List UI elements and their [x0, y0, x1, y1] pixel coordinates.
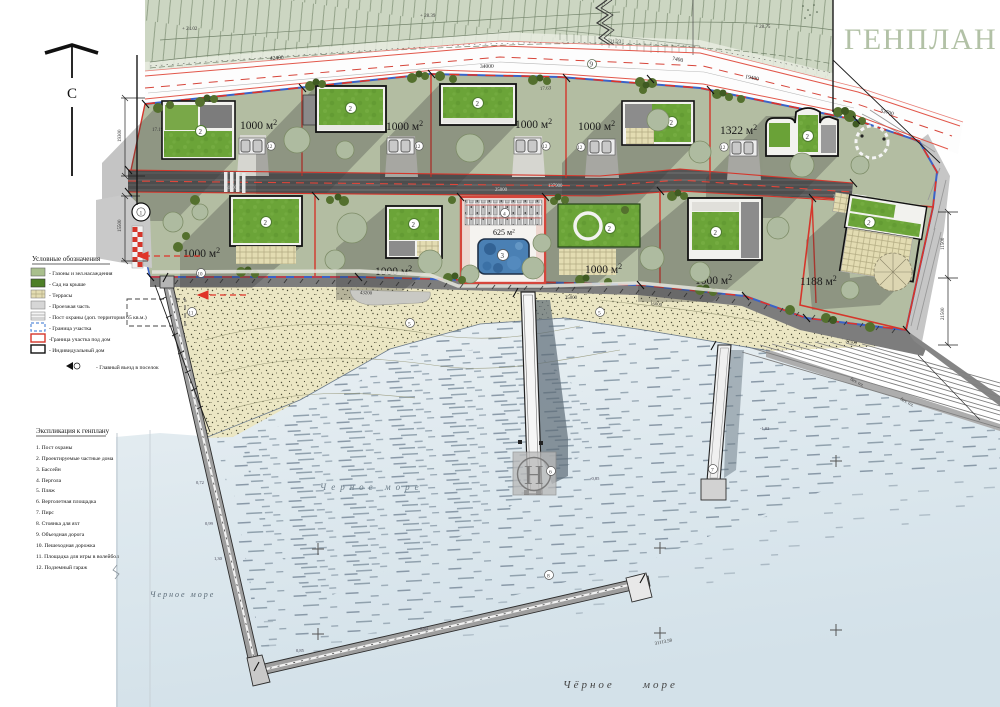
svg-text:34000: 34000 — [480, 64, 494, 70]
svg-text:1: 1 — [140, 211, 143, 217]
svg-text:5. Пляж: 5. Пляж — [36, 488, 55, 494]
svg-text:12: 12 — [542, 145, 548, 150]
svg-text:10. Пешеходная дорожка: 10. Пешеходная дорожка — [36, 543, 96, 549]
svg-text:- Граница участка: - Граница участка — [49, 326, 92, 332]
svg-text:6. Вертолетная площадка: 6. Вертолетная площадка — [36, 499, 97, 505]
svg-text:12: 12 — [720, 146, 726, 151]
svg-text:15500: 15500 — [118, 219, 123, 232]
svg-text:5: 5 — [408, 322, 411, 328]
svg-text:С: С — [67, 86, 77, 102]
svg-text:12. Подземный гараж: 12. Подземный гараж — [36, 564, 87, 571]
svg-text:+ 28.75: + 28.75 — [755, 25, 771, 30]
svg-text:3: 3 — [501, 252, 505, 260]
svg-text:12: 12 — [267, 145, 273, 150]
svg-text:2: 2 — [199, 128, 203, 136]
svg-text:- Газоны и зел.насаждения: - Газоны и зел.насаждения — [49, 271, 113, 277]
svg-text:+ 24.02: + 24.02 — [182, 27, 198, 32]
svg-text:- Индивидуальный дом: - Индивидуальный дом — [49, 347, 105, 354]
svg-text:1322 м2: 1322 м2 — [720, 123, 757, 137]
svg-text:12: 12 — [415, 145, 421, 150]
svg-text:8. Стоянка для яхт: 8. Стоянка для яхт — [36, 521, 80, 527]
svg-text:Экспликация к генплану: Экспликация к генплану — [36, 427, 110, 435]
svg-text:Чёрное: Чёрное — [563, 679, 615, 691]
svg-text:- Террасы: - Террасы — [49, 293, 73, 299]
svg-text:25000: 25000 — [495, 188, 508, 193]
svg-text:19300: 19300 — [118, 129, 123, 142]
svg-text:3. Бассейн: 3. Бассейн — [36, 466, 61, 473]
svg-text:- Главный въезд в поселок: - Главный въезд в поселок — [96, 364, 159, 371]
svg-text:2: 2 — [264, 219, 268, 227]
svg-text:- Сад на крыше: - Сад на крыше — [49, 282, 86, 288]
svg-text:9. Объездная дорога: 9. Объездная дорога — [36, 531, 85, 538]
svg-text:17.63: 17.63 — [540, 86, 552, 92]
svg-text:12: 12 — [577, 146, 583, 151]
svg-text:2: 2 — [608, 225, 612, 233]
svg-text:10: 10 — [198, 273, 204, 278]
svg-text:11500: 11500 — [941, 237, 946, 250]
svg-text:1000 м2: 1000 м2 — [515, 117, 552, 131]
svg-text:1000 м2: 1000 м2 — [578, 119, 615, 133]
svg-text:- Проезжая часть: - Проезжая часть — [49, 304, 90, 310]
svg-text:- Пост охраны (доп. территория: - Пост охраны (доп. территория 65 кв.м.) — [49, 314, 147, 321]
svg-text:2: 2 — [670, 119, 674, 127]
svg-text:11: 11 — [189, 312, 194, 317]
svg-text:43200: 43200 — [360, 291, 373, 296]
svg-text:Черное море: Черное море — [320, 482, 424, 492]
svg-text:1000 м2: 1000 м2 — [585, 262, 622, 276]
svg-text:+ 28.39: + 28.39 — [420, 14, 436, 19]
svg-text:Условные обозначения: Условные обозначения — [32, 255, 101, 263]
svg-text:4: 4 — [503, 212, 506, 218]
svg-text:6: 6 — [549, 470, 552, 476]
svg-text:8: 8 — [547, 574, 550, 580]
svg-text:5: 5 — [598, 311, 601, 317]
svg-text:1000 м2: 1000 м2 — [183, 246, 220, 260]
svg-text:море: море — [642, 679, 678, 691]
svg-text:-Граница участка под дом: -Граница участка под дом — [49, 337, 111, 343]
svg-text:1188 м2: 1188 м2 — [800, 274, 837, 288]
svg-text:2: 2 — [476, 100, 480, 108]
svg-text:1000 м2: 1000 м2 — [386, 119, 423, 133]
svg-text:137900: 137900 — [548, 184, 563, 189]
svg-text:ГЕНПЛАН: ГЕНПЛАН — [844, 23, 997, 56]
svg-text:2: 2 — [412, 221, 416, 229]
svg-text:2. Проектируемые частные дома: 2. Проектируемые частные дома — [36, 456, 114, 462]
svg-text:2: 2 — [714, 229, 718, 237]
svg-text:1000 м2: 1000 м2 — [240, 118, 277, 132]
svg-text:Черное море: Черное море — [150, 590, 215, 599]
svg-text:11. Площадка для игры в волейб: 11. Площадка для игры в волейбол — [36, 553, 119, 560]
svg-text:4. Пергола: 4. Пергола — [36, 478, 62, 484]
svg-text:H: H — [524, 460, 544, 490]
svg-text:44700: 44700 — [225, 186, 238, 191]
svg-text:25000: 25000 — [565, 296, 578, 301]
svg-text:625 м2: 625 м2 — [493, 228, 515, 237]
svg-text:7. Пирс: 7. Пирс — [36, 510, 54, 516]
svg-text:9: 9 — [590, 61, 594, 69]
svg-text:7: 7 — [711, 468, 714, 474]
svg-text:42400: 42400 — [270, 55, 284, 62]
svg-text:2: 2 — [806, 133, 810, 141]
svg-text:2: 2 — [349, 105, 353, 113]
svg-text:1. Пост охраны: 1. Пост охраны — [36, 445, 73, 451]
svg-text:21500: 21500 — [941, 307, 946, 320]
